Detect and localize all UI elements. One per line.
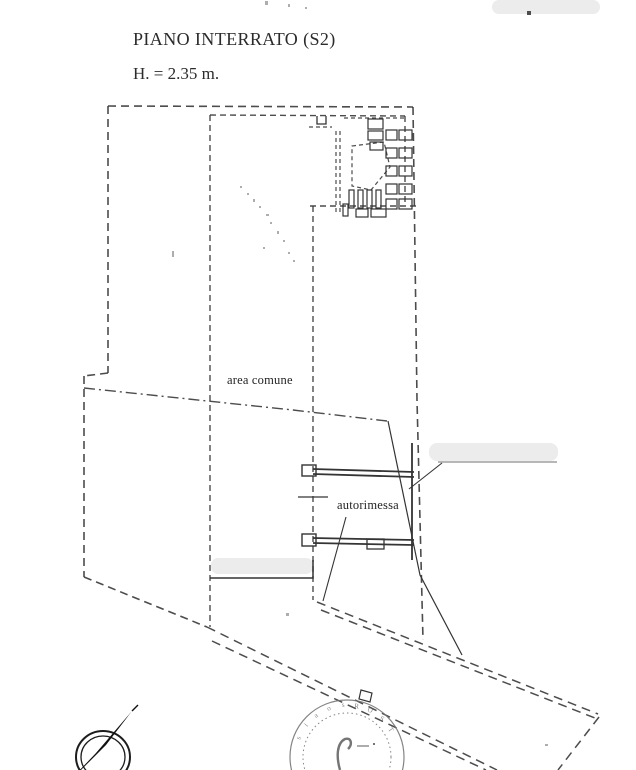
stamp-letter: s xyxy=(294,735,303,741)
stamp-letter: R xyxy=(354,702,360,711)
scan-noise xyxy=(172,186,548,746)
redaction-bar-right xyxy=(429,443,558,461)
garage-door-jamb-bottom xyxy=(302,534,316,546)
compass-rose-icon xyxy=(55,705,138,770)
leader-line-right xyxy=(409,463,442,489)
redaction-bar-bottom xyxy=(211,558,313,574)
stamp-letter: o xyxy=(326,704,333,713)
building-outline xyxy=(210,115,419,627)
stamp-letter: T xyxy=(386,726,395,735)
leader-line-garage xyxy=(323,517,346,601)
stamp-letter: i xyxy=(302,722,310,729)
stair-treads xyxy=(343,119,412,217)
redaction-bars xyxy=(211,0,600,574)
common-area-divider xyxy=(84,388,387,421)
ink-dot xyxy=(527,11,531,15)
ceiling-height-note: H. = 2.35 m. xyxy=(133,64,219,83)
outline-notch xyxy=(317,116,326,124)
road-gate-mark xyxy=(359,690,372,702)
plan-title: PIANO INTERRATO (S2) xyxy=(133,29,336,50)
stamp-letter: S xyxy=(378,714,386,723)
common-area-label: area comune xyxy=(227,373,293,387)
surveyor-stamp: s i a o s R O S T xyxy=(290,700,404,770)
stamp-letter: a xyxy=(312,711,320,720)
stamp-signature-curl xyxy=(338,739,351,770)
stairwell-detail xyxy=(309,118,412,217)
scanned-floor-plan-sheet: PIANO INTERRATO (S2) H. = 2.35 m. xyxy=(0,0,636,770)
garage-label: autorimessa xyxy=(337,498,399,512)
redaction-bar-top-right xyxy=(492,0,600,14)
stair-core-outline xyxy=(352,142,390,190)
leader-lines xyxy=(323,463,442,601)
compass-needle xyxy=(55,711,132,770)
floor-plan-drawing: PIANO INTERRATO (S2) H. = 2.35 m. xyxy=(0,0,636,770)
scan-artifacts-top xyxy=(265,1,307,9)
access-road xyxy=(207,602,600,770)
stamp-letter: s xyxy=(341,701,345,709)
